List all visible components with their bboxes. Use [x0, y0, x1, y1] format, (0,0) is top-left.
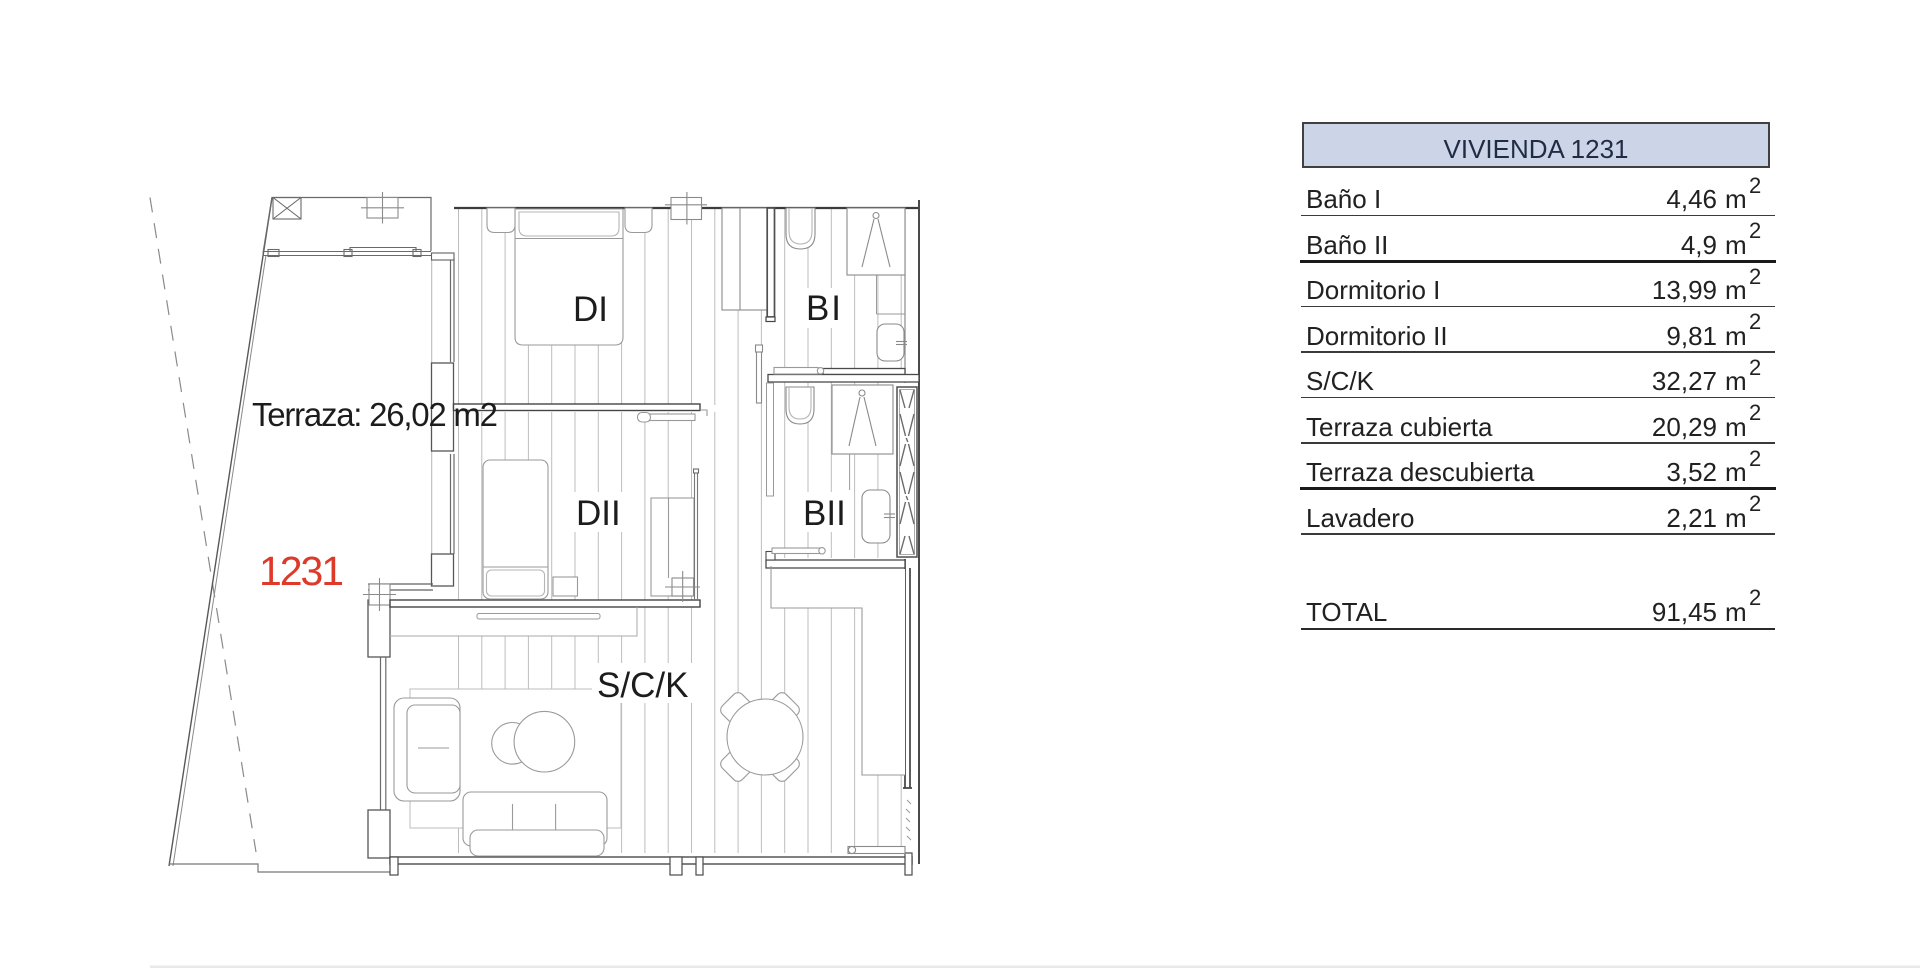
svg-text:BII: BII: [803, 494, 846, 533]
svg-text:DI: DI: [573, 290, 608, 329]
svg-text:BI: BI: [806, 289, 841, 328]
svg-text:Terraza: 26,02 m2: Terraza: 26,02 m2: [252, 396, 498, 433]
svg-text:S/C/K: S/C/K: [597, 666, 688, 705]
svg-text:1231: 1231: [259, 548, 344, 594]
svg-text:DII: DII: [576, 494, 621, 533]
